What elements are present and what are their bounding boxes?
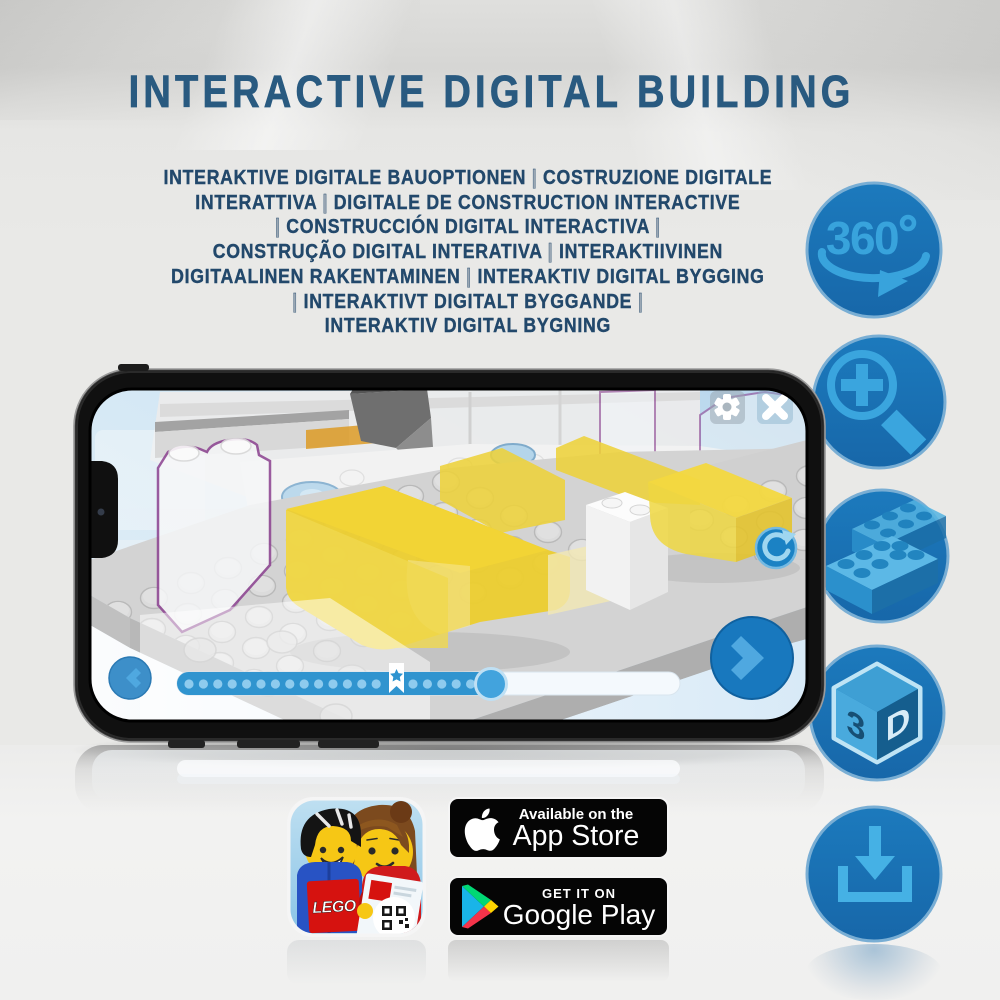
svg-text:360: 360 [826,212,898,264]
svg-text:Google Play: Google Play [503,899,656,930]
svg-text:App Store: App Store [513,820,640,852]
svg-text:LEGO: LEGO [312,898,357,917]
